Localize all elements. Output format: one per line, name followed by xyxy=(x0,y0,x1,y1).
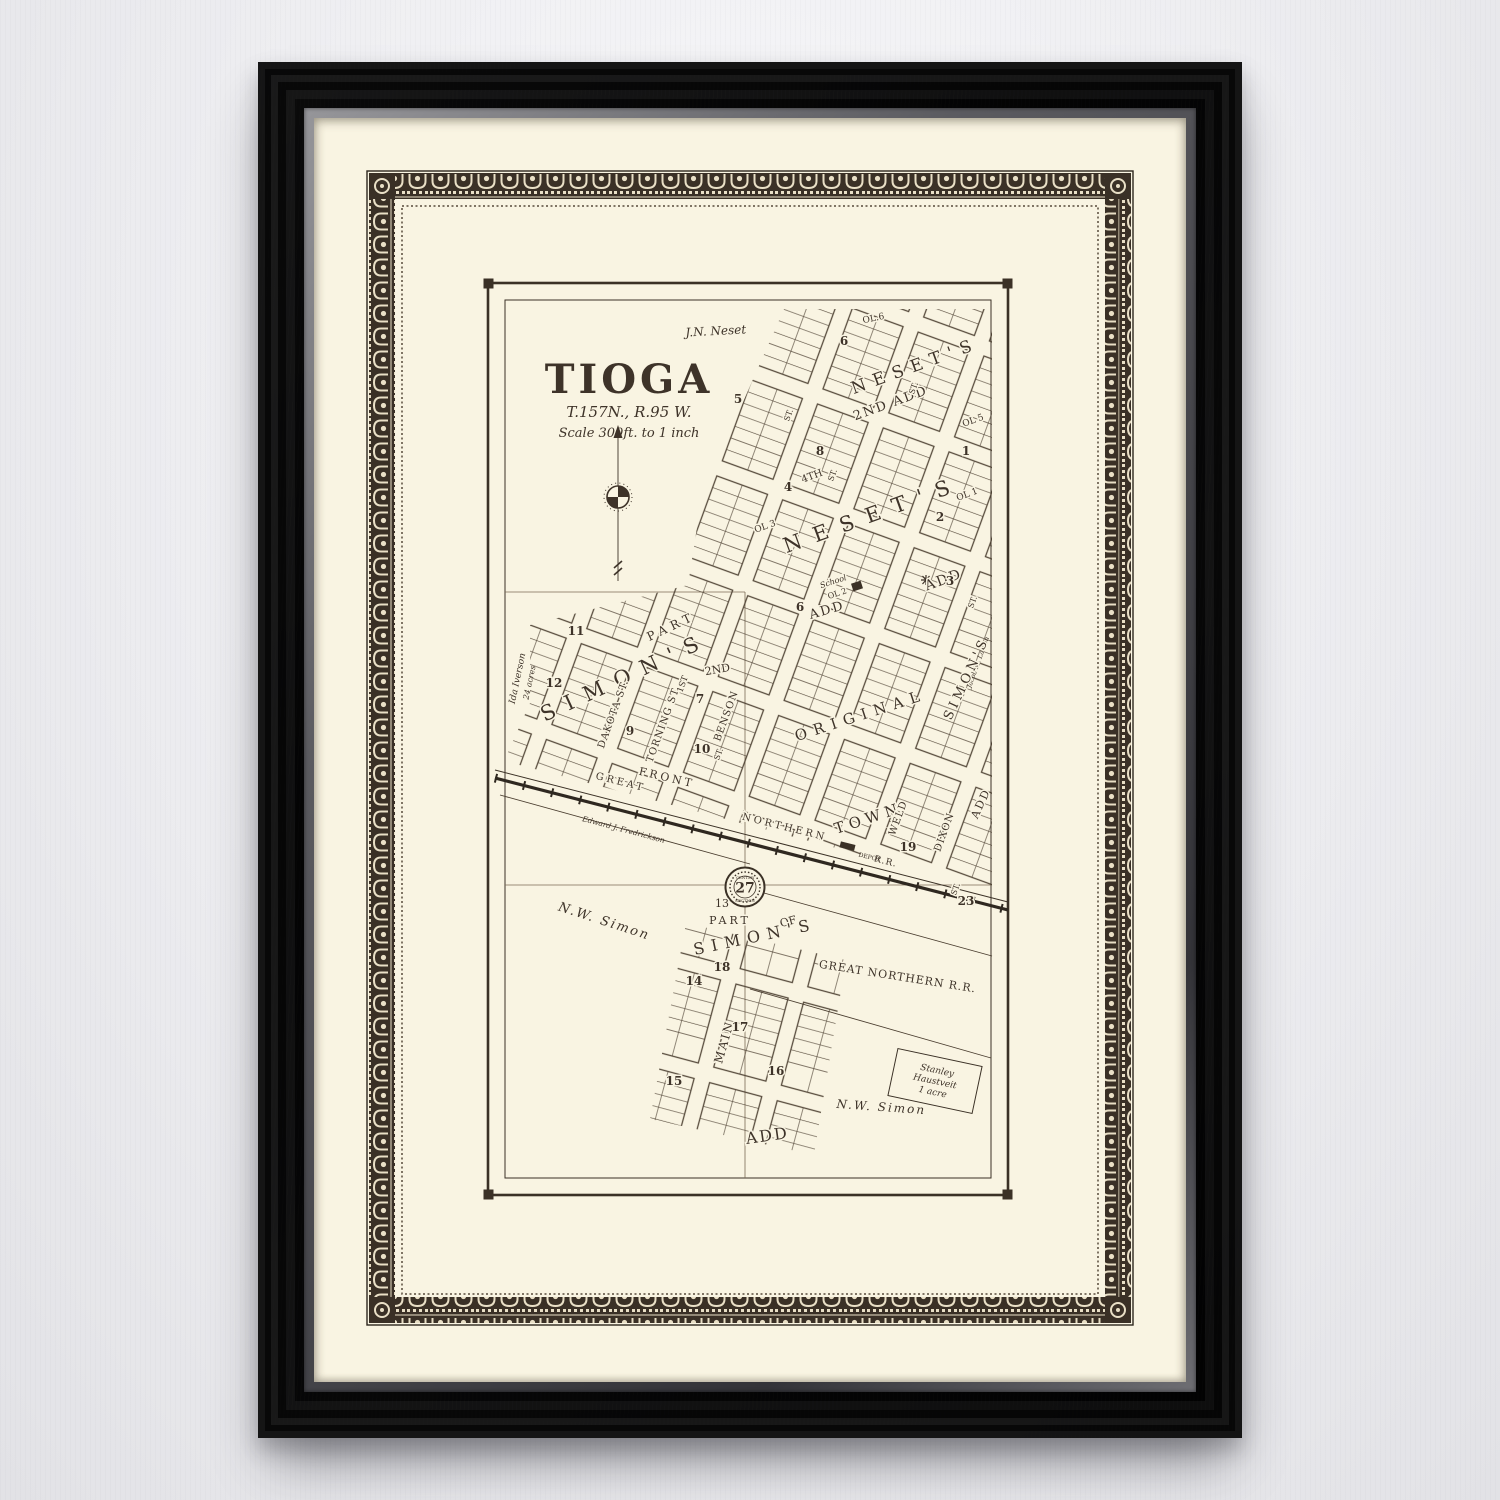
owner-neset-top: J.N. Neset xyxy=(682,322,747,339)
addition-part13-word: PART xyxy=(709,914,751,927)
map-township: T.157N., R.95 W. xyxy=(566,403,691,421)
map-panel: 27 CENTER SECTION TIOGA T.157N., R.95 W.… xyxy=(484,279,1013,1200)
section-word: SECTION xyxy=(735,898,755,903)
owner-nw-simon-left: N.W. Simon xyxy=(555,899,652,943)
plat-grid-lower xyxy=(650,923,846,1155)
map-scale: Scale 300ft. to 1 inch xyxy=(559,426,700,441)
section-27-marker: 27 CENTER SECTION xyxy=(726,868,765,907)
block-number: 14 xyxy=(686,974,703,988)
block-number: 19 xyxy=(900,840,917,854)
map-title: TIOGA xyxy=(545,356,714,403)
block-number: 6 xyxy=(840,334,848,348)
frame-inner-lip: 27 CENTER SECTION TIOGA T.157N., R.95 W.… xyxy=(304,108,1196,1392)
picture-frame: 27 CENTER SECTION TIOGA T.157N., R.95 W.… xyxy=(258,62,1242,1438)
block-number: 12 xyxy=(546,676,563,690)
block-number: 3 xyxy=(946,574,954,588)
block-number: 8 xyxy=(816,444,824,458)
map-print: 27 CENTER SECTION TIOGA T.157N., R.95 W.… xyxy=(314,118,1186,1382)
block-number: 11 xyxy=(568,624,585,638)
block-number: 23 xyxy=(958,894,975,908)
product-photo: { "artwork": { "kind": "framed vintage p… xyxy=(0,0,1500,1500)
title-block: TIOGA T.157N., R.95 W. Scale 300ft. to 1… xyxy=(545,356,714,441)
block-number: 16 xyxy=(768,1064,785,1078)
section-number: 27 xyxy=(735,881,754,897)
block-number: 10 xyxy=(694,742,711,756)
block-number: 5 xyxy=(734,392,742,406)
block-number: 4 xyxy=(784,480,792,494)
compass-rose xyxy=(604,425,632,581)
block-number: 18 xyxy=(714,960,731,974)
block-number: 7 xyxy=(696,692,704,706)
mat-paper: 27 CENTER SECTION TIOGA T.157N., R.95 W.… xyxy=(314,118,1186,1382)
block-number: 9 xyxy=(626,724,634,738)
addition-part13-num: 13 xyxy=(715,897,729,910)
section-center-word: CENTER xyxy=(736,875,755,880)
block-number: 6 xyxy=(796,600,804,614)
block-number: 2 xyxy=(936,510,944,524)
block-number: 17 xyxy=(732,1020,749,1034)
block-number: 15 xyxy=(666,1074,683,1088)
block-number: 1 xyxy=(962,444,970,458)
